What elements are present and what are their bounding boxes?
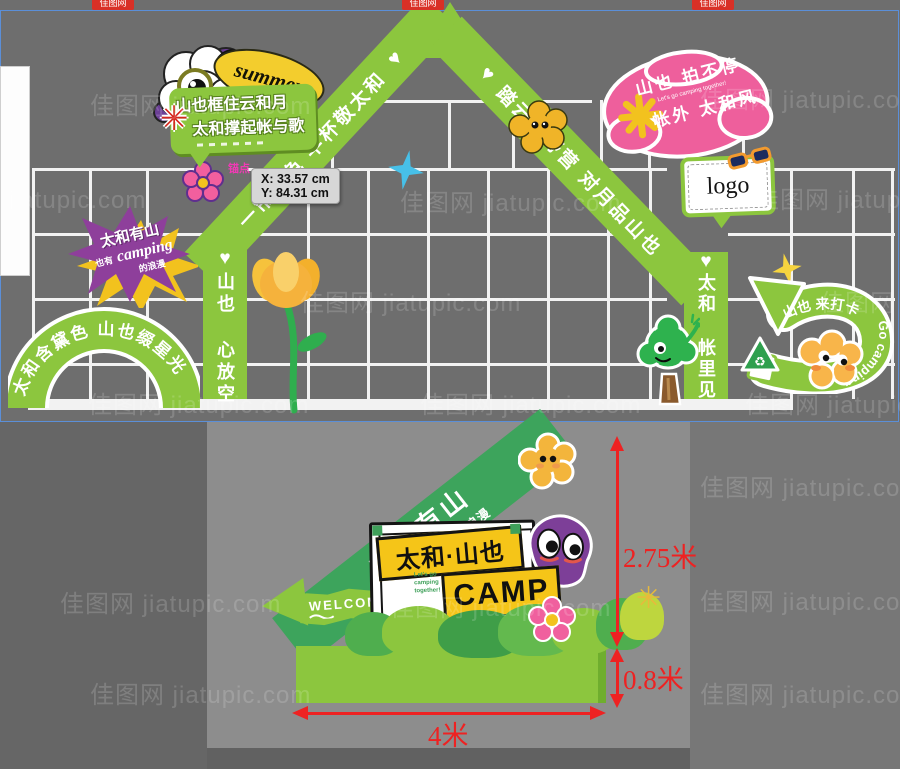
- camp-sign-small-text: Let's go camping together!: [414, 571, 443, 595]
- flower-face-icon: [508, 100, 570, 154]
- tooltip-x: X: 33.57 cm: [261, 172, 330, 186]
- tree-character: [636, 312, 700, 408]
- bottom-right-strip: [690, 422, 900, 769]
- yellow-flower-icon: ✳: [636, 584, 661, 614]
- bottom-left-strip: [0, 422, 207, 769]
- site-badge: 佳图网: [402, 0, 444, 10]
- arrowhead-icon: [610, 632, 624, 647]
- white-pillar: [0, 66, 30, 276]
- heart-icon: ♥: [384, 48, 407, 70]
- grid-line: [247, 233, 667, 236]
- heart-icon: ♥: [219, 249, 230, 268]
- arrowhead-icon: [292, 706, 308, 720]
- base-dimension-label: 0.8米: [623, 658, 684, 697]
- recycle-icon: ♻: [754, 354, 766, 369]
- height-dimension-line: [616, 446, 619, 636]
- semicircle-arch: 太和含黛色 山也缀星光: [8, 302, 200, 408]
- tooltip-y: Y: 84.31 cm: [261, 186, 330, 200]
- squiggle-icon: [307, 611, 337, 619]
- heart-icon: ♥: [700, 252, 711, 271]
- arrowhead-icon: [610, 648, 624, 662]
- arrowhead-icon: [590, 706, 606, 720]
- logo-tail: [712, 214, 732, 229]
- width-dimension-label: 4米: [428, 714, 469, 753]
- bubble-sign: 山也框住云和月 太和撑起帐与歌: [169, 83, 317, 154]
- corner-square: [372, 525, 382, 535]
- tulip-flower: [230, 246, 338, 414]
- coordinate-tooltip: X: 33.57 cm Y: 84.31 cm: [251, 168, 340, 204]
- bubble-tail: [189, 151, 212, 168]
- dashed-trim: [197, 141, 267, 146]
- purple-burst-line2-prefix: 也有: [94, 255, 114, 269]
- corner-square: [510, 524, 520, 534]
- camp-sign-title: 太和·山也: [394, 531, 506, 575]
- arrow-sign: 山也 来打卡 Go camping ♻: [724, 252, 900, 394]
- grid-line: [448, 100, 451, 168]
- design-preview: 佳图网 佳图网 佳图网 太和含黛色 山也缀星光 一帘山色: [0, 0, 900, 769]
- grid-line: [728, 233, 895, 236]
- site-badge: 佳图网: [92, 0, 134, 10]
- site-badge: 佳图网: [692, 0, 734, 10]
- arrowhead-icon: [610, 436, 624, 451]
- pink-flower-icon: [528, 596, 576, 644]
- arrowhead-icon: [610, 694, 624, 708]
- heart-icon: ♥: [476, 63, 499, 85]
- flower-face-icon: [518, 432, 578, 490]
- height-dimension-label: 2.75米: [623, 536, 697, 575]
- anchor-label: 锚点: [228, 160, 250, 176]
- bubble-sign-line2: 太和撑起帐与歌: [192, 111, 317, 139]
- grid-line: [32, 168, 205, 171]
- base-dimension-line: [616, 656, 619, 698]
- base-platform: [296, 646, 606, 703]
- red-flower-icon: ✳: [160, 102, 189, 136]
